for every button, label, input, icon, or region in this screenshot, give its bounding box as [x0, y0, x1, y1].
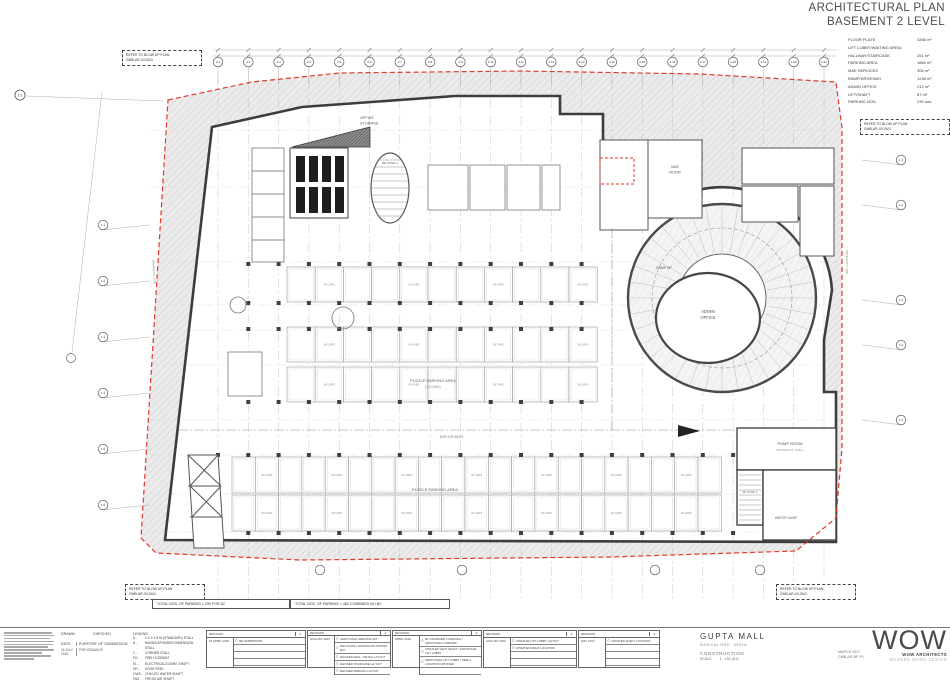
- parking-stall: [232, 495, 255, 531]
- grid-bubble-label: 2.7: [398, 60, 403, 64]
- parking-bay-label: 60 CARS: [408, 283, 419, 287]
- parking-stall: [698, 495, 721, 531]
- parking-stall: [513, 267, 541, 302]
- grid-bubble-label: 1.1: [899, 158, 904, 162]
- area-row: FLOOR PLATE4266 m²: [848, 36, 947, 44]
- column-symbol: [398, 453, 402, 457]
- grid-bubble-label: 1.3: [899, 298, 904, 302]
- area-row-label: PARKING AREA: [848, 59, 878, 67]
- parking-stall: [541, 367, 569, 402]
- grid-leader: [26, 96, 163, 101]
- parking-bay-label: 60 CARS: [681, 511, 692, 515]
- me-room-label: ROOM: [669, 171, 680, 175]
- area-row-value: 1248 m²: [917, 75, 947, 83]
- column-symbol: [519, 531, 523, 535]
- column-symbol: [549, 301, 553, 305]
- grid-bubble-label: 1.5: [899, 418, 904, 422]
- parking-stall: [513, 327, 541, 362]
- parking-stall: [442, 495, 465, 531]
- grid-bubble-label: 2.13: [579, 60, 585, 64]
- revision-item-text: ADDITIONAL LIFT LOBBY / FIRE-X LOCATION …: [425, 658, 480, 666]
- column-symbol: [337, 531, 341, 535]
- revision-item-text: B1 STANDARD 4 PARKING / ADDITIONAL CARPA…: [425, 637, 480, 645]
- grid-bubble-stem: [862, 420, 901, 425]
- parking-stall: [541, 267, 569, 302]
- revision-item-empty: [606, 659, 659, 666]
- revision-column: REVISION3APRIL 2016△B1 STANDARD 4 PARKIN…: [392, 630, 482, 668]
- parking-stall: [558, 457, 581, 493]
- grid-bubble-label: 2.15: [639, 60, 645, 64]
- column-symbol: [549, 262, 553, 266]
- column-symbol: [277, 262, 281, 266]
- area-row-value: 212 m²: [917, 83, 947, 91]
- parking-bay-label: 60 CARS: [324, 383, 335, 387]
- parking-stall: [488, 495, 511, 531]
- title-block: DRAWN CHECKED DATE PURPOSE OF SUBMISSION…: [0, 627, 950, 671]
- copyright-note: [4, 632, 54, 661]
- parking-stall: [628, 457, 651, 493]
- column-symbol: [701, 531, 705, 535]
- column-symbol: [246, 327, 250, 331]
- floor-plan-drawing: 2.12.22.32.42.52.62.72.82.92.102.112.122…: [0, 0, 950, 671]
- revision-triangle-icon: △: [336, 646, 339, 649]
- column-symbol: [307, 262, 311, 266]
- grid-bubble-stem: [103, 337, 150, 342]
- parking-total-notes: TOTAL NOS. OF PARKING = 239 FOR B2 TOTAL…: [152, 599, 450, 609]
- column-symbol: [489, 531, 493, 535]
- column-symbol: [307, 301, 311, 305]
- revision-triangle-icon: △: [421, 650, 424, 653]
- me-room-label: M&E: [671, 165, 679, 169]
- grid-bubble-stem: [103, 393, 150, 398]
- parking-stall: [698, 457, 721, 493]
- parking-stall: [558, 495, 581, 531]
- column-symbol: [398, 262, 402, 266]
- parking-stall: [541, 327, 569, 362]
- grid-bubble-label: 2.2: [246, 60, 251, 64]
- parking-stall: [372, 495, 395, 531]
- grid-bubble-label: 2.14: [609, 60, 615, 64]
- parking-bay-label: 60 CARS: [578, 383, 589, 387]
- refer-blowup-box: REFER TO BLOW UP PLAN GMB-AR-XX-BLD: [860, 119, 950, 135]
- area-row: LIFT LOBBY/WAITING AREA/: [848, 44, 947, 52]
- parking-stall: [456, 367, 484, 402]
- legend-desc: FRESH AIR SHAFT: [145, 677, 174, 682]
- parking-bay-label: 60 CARS: [408, 383, 419, 387]
- revision-item-text: UPDATED VENT SHAFT / ADDITIONAL LIFT LOB…: [425, 647, 480, 655]
- refer-blowup-line2: GMB-AR-XX-BLD: [126, 58, 198, 63]
- transformer-unit: [335, 156, 344, 182]
- column-symbol: [489, 327, 493, 331]
- refer-blowup-box: REFER TO BLOW UP PLAN GMB-AR-XX-BLD: [122, 50, 202, 66]
- grid-bubble-label: 1.3: [101, 335, 106, 339]
- column-symbol: [580, 327, 584, 331]
- parking-stall: [372, 457, 395, 493]
- column-symbol: [307, 453, 311, 457]
- column-symbol: [580, 262, 584, 266]
- column-symbol: [610, 531, 614, 535]
- revision-item-empty: [606, 645, 659, 652]
- grid-bubble-label: 2.1: [216, 60, 221, 64]
- re-stair-2-label: RE STAIR 2: [742, 490, 757, 494]
- legend-item: B -HANDICAP/WIDER DIMENSION STALL: [133, 641, 203, 651]
- office-storage-label: STORAGE: [360, 122, 379, 126]
- grid-bubble-label: 2.21: [821, 60, 827, 64]
- area-row-label: HALLWAY/STAIRCASE: [848, 52, 890, 60]
- revision-triangle-icon: △: [421, 660, 424, 663]
- admin-office-label: ADMIN: [701, 309, 715, 314]
- parking-total-combined: TOTAL NOS. OF PARKING = 482 COMBINED B1+…: [290, 599, 450, 609]
- drawing-title-line2: BASEMENT 2 LEVEL: [809, 16, 946, 30]
- driveway-label: DRIVEWAY: [440, 435, 465, 439]
- grid-bubble-label: 2.10: [488, 60, 494, 64]
- parking-bay-label: 60 CARS: [541, 473, 552, 477]
- legend-block: LEGEND A -2.4 X 4.8 M (STANDARD) STALLB …: [133, 632, 203, 682]
- revision-item-text: UPDATED DRAIN LOCATION: [516, 646, 555, 650]
- area-row: LIFT/SHAFT87 m²: [848, 91, 947, 99]
- area-statement-table: FLOOR PLATE4266 m²LIFT LOBBY/WAITING ARE…: [848, 36, 947, 106]
- revision-item-empty: [420, 668, 481, 675]
- revision-item-empty: [234, 645, 305, 652]
- refer-blowup-box: REFER TO BLOW UP PLAN GMB-AR-XX-BLD: [776, 584, 856, 600]
- pump-room-label: PUMP ROOM: [777, 441, 802, 446]
- parking-bay-label: 60 CARS: [471, 511, 482, 515]
- parking-stall: [488, 457, 511, 493]
- area-row-label: RAMP/DRIVEWAY: [848, 75, 882, 83]
- grid-bubble-label: 2.16: [670, 60, 676, 64]
- refer-blowup-box: REFER TO BLOW UP PLAN GMB-AR-XX-BLD: [125, 584, 205, 600]
- parking-bay-label: 60 CARS: [541, 511, 552, 515]
- transformer-unit: [335, 187, 344, 213]
- revision-item: △REVISED MALL / RETAIL LAYOUT: [335, 654, 390, 661]
- column-symbol: [428, 400, 432, 404]
- parking-stall: [279, 495, 302, 531]
- revision-item-empty: [511, 659, 576, 666]
- revision-item-text: RELOCATE LOADING/UNLOADING BAY: [340, 644, 389, 652]
- column-symbol: [246, 400, 250, 404]
- column-symbol: [458, 400, 462, 404]
- revision-item-text: REVISED MALL / RETAIL LAYOUT: [340, 655, 385, 659]
- revision-header-label: REVISION: [579, 632, 649, 636]
- ramp-up-label: RAMP UP: [656, 266, 672, 270]
- column-symbol: [458, 262, 462, 266]
- column-symbol: [519, 301, 523, 305]
- parking-bay-label: 60 CARS: [324, 283, 335, 287]
- parking-bay-label: 60 CARS: [408, 343, 419, 347]
- revision-item-empty: [511, 652, 576, 659]
- revision-header-label: REVISION: [393, 631, 471, 635]
- revision-item: △REVISED STAIRCASE LAYOUT: [335, 661, 390, 668]
- revision-item: △UPDATED VENT SHAFT / ADDITIONAL LIFT LO…: [420, 647, 481, 658]
- area-row-value: 306 m²: [917, 67, 947, 75]
- revision-column: REVISION116 APRIL 2015△RE-SUBMISSION: [206, 630, 306, 668]
- parking-stall: [651, 495, 674, 531]
- column-symbol: [428, 262, 432, 266]
- transformer-unit: [309, 156, 318, 182]
- parking-stall: [279, 457, 302, 493]
- refer-blowup-line2: GMB-AR-XX-BLD: [780, 592, 852, 597]
- parking-bay-label: 60 CARS: [681, 473, 692, 477]
- revision-item-text: ADDITIONAL SERVICE LIFT: [340, 637, 377, 641]
- area-row-label: LIFT/SHAFT: [848, 91, 870, 99]
- revision-header: REVISION1: [207, 631, 305, 638]
- area-row: ADMIN OFFICE212 m²: [848, 83, 947, 91]
- grid-bubble-label: 2.8: [428, 60, 433, 64]
- grid-bubble-label: 2.9: [458, 60, 463, 64]
- column-symbol: [246, 453, 250, 457]
- grid-bubble-label: 2.4: [307, 60, 312, 64]
- revision-item: △RELOCATE LOADING/UNLOADING BAY: [335, 643, 390, 654]
- parking-bay-label: 60 CARS: [262, 511, 273, 515]
- transformer-unit: [322, 187, 331, 213]
- column-symbol: [368, 262, 372, 266]
- puzzle-parking-label: PUZZLE PARKING AREA: [412, 487, 458, 492]
- area-row: PARKING AREA1860 m²: [848, 59, 947, 67]
- revision-number: 3: [471, 631, 481, 635]
- column-symbol: [428, 327, 432, 331]
- revision-column: REVISION5MAY 2017△UPDATED SHAFT LOCATION: [578, 630, 660, 668]
- column-symbol: [277, 453, 281, 457]
- column-symbol: [246, 531, 250, 535]
- grid-bubble-stem: [862, 205, 901, 210]
- column-symbol: [368, 453, 372, 457]
- parking-stall: [343, 327, 371, 362]
- revision-item: △UPDATED LIFT LOBBY LAYOUT: [511, 638, 576, 645]
- column-symbol: [246, 301, 250, 305]
- parking-stall: [428, 327, 456, 362]
- water-sump-label: WATER SUMP: [775, 516, 798, 520]
- parking-stall: [628, 495, 651, 531]
- revision-triangle-icon: △: [336, 637, 339, 640]
- grid-bubble-stem: [103, 281, 150, 286]
- column-symbol: [731, 453, 735, 457]
- parking-bay-label: 60 CARS: [578, 343, 589, 347]
- parking-bay-label: 60 CARS: [331, 511, 342, 515]
- area-row-label: LIFT LOBBY/WAITING AREA/: [848, 44, 902, 52]
- grid-bubble: [650, 565, 660, 575]
- grid-bubble-stem: [862, 345, 901, 350]
- grid-bubble-label: 2.19: [760, 60, 766, 64]
- parking-bay-label: 60 CARS: [578, 283, 589, 287]
- column-symbol: [398, 531, 402, 535]
- puzzle-parking-label: PUZZLE PARKING AREA: [410, 378, 456, 383]
- parking-stall: [372, 327, 400, 362]
- column-symbol: [489, 301, 493, 305]
- grid-bubble-label: 2.11: [518, 60, 524, 64]
- column-symbol: [368, 301, 372, 305]
- parking-stall: [349, 457, 372, 493]
- office-storage-label: OFFICE: [360, 116, 374, 120]
- parking-stall: [343, 367, 371, 402]
- drawing-title-line1: ARCHITECTURAL PLAN: [809, 2, 946, 16]
- area-row-value: 4266 m²: [917, 36, 947, 44]
- parking-bay-label: 60 CARS: [493, 383, 504, 387]
- revision-number: 2: [380, 631, 390, 635]
- area-row: M&E SERVICES306 m²: [848, 67, 947, 75]
- revision-item-text: UPDATED SHAFT LOCATION: [611, 639, 650, 643]
- revision-header-label: REVISION: [308, 631, 380, 635]
- parking-bay-label: 60 CARS: [401, 473, 412, 477]
- column-symbol: [458, 531, 462, 535]
- area-row-label: M&E SERVICES: [848, 67, 878, 75]
- date-label: DATE: [61, 642, 77, 646]
- column-symbol: [671, 531, 675, 535]
- column-symbol: [549, 531, 553, 535]
- wow-logo: WOW: [851, 629, 947, 652]
- drawn-checked-block: DRAWN CHECKED DATE PURPOSE OF SUBMISSION…: [61, 632, 129, 656]
- purpose-value: FOR ISSUANCE: [77, 648, 103, 656]
- grid-bubble-label: 2.12: [548, 60, 554, 64]
- drawing-title: ARCHITECTURAL PLAN BASEMENT 2 LEVEL: [809, 2, 946, 29]
- legend-key: B -: [133, 641, 145, 651]
- parking-stall: [512, 495, 535, 531]
- revision-date: AUGUST 2016: [484, 638, 511, 667]
- area-row: RAMP/DRIVEWAY1248 m²: [848, 75, 947, 83]
- revision-number: 4: [566, 632, 576, 636]
- column-symbol: [489, 262, 493, 266]
- revision-item: △UPDATED SHAFT LOCATION: [606, 638, 659, 645]
- parking-stall: [302, 457, 325, 493]
- scale-value: 1 : 150 (A1): [720, 657, 739, 661]
- re-stair-1-label: RE STAIR 1: [382, 161, 398, 165]
- legend-item: FAS -FRESH AIR SHAFT: [133, 677, 203, 682]
- parking-stall: [343, 267, 371, 302]
- parking-bay-label: 60 CARS: [401, 511, 412, 515]
- purpose-label: PURPOSE OF SUBMISSION: [77, 642, 128, 646]
- column-symbol: [428, 453, 432, 457]
- column-symbol: [337, 453, 341, 457]
- dimension-line: [72, 92, 102, 352]
- column-symbol: [368, 327, 372, 331]
- grid-bubble-stem: [862, 160, 901, 165]
- column-symbol: [277, 327, 281, 331]
- project-status: CONSTRUCTION: [700, 651, 810, 656]
- parking-bay-label: 60 CARS: [471, 473, 482, 477]
- column-symbol: [731, 531, 735, 535]
- checked-label: CHECKED: [93, 632, 111, 636]
- parking-bay-label: 60 CARS: [331, 473, 342, 477]
- grid-bubble-label: 1.5: [101, 447, 106, 451]
- oval-stair: RE STAIR 1: [371, 153, 409, 223]
- grid-bubble-label: 1.2: [101, 279, 106, 283]
- parking-bay-label: 60 CARS: [262, 473, 273, 477]
- parking-stall: [287, 327, 315, 362]
- legend-desc: HANDICAP/WIDER DIMENSION STALL: [145, 641, 203, 651]
- revision-column: REVISION4AUGUST 2016△UPDATED LIFT LOBBY …: [483, 630, 577, 668]
- column-symbol: [549, 327, 553, 331]
- drawing-sheet: { "title": {"line1": "ARCHITECTURAL PLAN…: [0, 0, 950, 671]
- revision-item-empty: [234, 659, 305, 666]
- project-block: GUPTA MALL BANGALORE, INDIA CONSTRUCTION…: [700, 632, 810, 661]
- revision-triangle-icon: △: [235, 639, 238, 642]
- column-symbol: [277, 301, 281, 305]
- grid-bubble: [457, 565, 467, 575]
- column-symbol: [701, 453, 705, 457]
- revision-number: 1: [295, 632, 305, 636]
- revision-item-text: UPDATED LIFT LOBBY LAYOUT: [516, 639, 559, 643]
- column-symbol: [671, 453, 675, 457]
- revision-item: △UPDATED DRAIN LOCATION: [511, 645, 576, 652]
- column-symbol: [337, 262, 341, 266]
- revision-triangle-icon: △: [336, 655, 339, 658]
- parking-stall: [582, 457, 605, 493]
- parking-stall: [456, 267, 484, 302]
- grid-bubble-label: 2.5: [337, 60, 342, 64]
- column-symbol: [277, 400, 281, 404]
- column-symbol: [519, 400, 523, 404]
- grid-bubble-label: 2.18: [730, 60, 736, 64]
- revision-header: REVISION4: [484, 631, 576, 638]
- column-symbol: [640, 453, 644, 457]
- column-symbol: [307, 531, 311, 535]
- revision-item: △B1 STANDARD 4 PARKING / ADDITIONAL CARP…: [420, 636, 481, 647]
- grid-bubble-stem: [103, 225, 150, 230]
- admin-office-label: OFFICE: [700, 315, 716, 320]
- grid-bubble-label: 1.4: [101, 391, 106, 395]
- grid-bubble-stem: [103, 449, 150, 454]
- drawn-label: DRAWN: [61, 632, 93, 636]
- column-symbol: [580, 400, 584, 404]
- legend-key: FAS -: [133, 677, 145, 682]
- grid-bubble-label: 1.6: [101, 503, 106, 507]
- column-symbol: [458, 327, 462, 331]
- pump-room-level: BOTTOM LVL -9.80m: [777, 448, 805, 452]
- grid-bubble-label: 1.0: [18, 93, 23, 97]
- revision-item-empty: [606, 652, 659, 659]
- column-symbol: [549, 400, 553, 404]
- transformer-unit: [296, 156, 305, 182]
- column-symbol: [337, 301, 341, 305]
- column-symbol: [337, 400, 341, 404]
- grid-bubble-label: 2.3: [277, 60, 282, 64]
- parking-stall: [651, 457, 674, 493]
- firm-subname: WARNER WONG DESIGN: [851, 657, 947, 662]
- revision-item-empty: [234, 652, 305, 659]
- parking-stall: [513, 367, 541, 402]
- parking-stall: [287, 367, 315, 402]
- revision-date: APRIL 2016: [393, 636, 420, 675]
- revision-date: 16 APRIL 2015: [207, 638, 234, 667]
- area-row-value: 261 m²: [917, 52, 947, 60]
- column-symbol: [489, 453, 493, 457]
- grid-bubble-label: 2.6: [367, 60, 372, 64]
- revision-item: △RE-SUBMISSION: [234, 638, 305, 645]
- grid-bubble-label: 2.17: [700, 60, 706, 64]
- parking-stall: [372, 267, 400, 302]
- revision-item-text: RE-SUBMISSION: [239, 639, 262, 643]
- parking-bay-label: 60 CARS: [493, 343, 504, 347]
- parking-bay-label: 60 CARS: [493, 283, 504, 287]
- area-row: HALLWAY/STAIRCASE261 m²: [848, 52, 947, 60]
- date-value: 16 JULY 2016: [61, 648, 77, 656]
- transformer-unit: [309, 187, 318, 213]
- project-name: GUPTA MALL: [700, 632, 810, 641]
- column-symbol: [580, 531, 584, 535]
- column-symbol: [580, 453, 584, 457]
- loading-dock: [188, 455, 224, 548]
- column-symbol: [519, 262, 523, 266]
- column-symbol: [549, 453, 553, 457]
- refer-blowup-line2: GMB-AR-XX-BLD: [864, 127, 946, 132]
- area-row-label: FLOOR PLATE: [848, 36, 875, 44]
- transformer-unit: [296, 187, 305, 213]
- parking-stall: [302, 495, 325, 531]
- column-symbol: [519, 453, 523, 457]
- grid-bubble: [67, 354, 76, 363]
- area-row-value: [917, 44, 947, 52]
- area-row: PARKING NOS.239 nos.: [848, 98, 947, 106]
- grid-bubble: [315, 565, 325, 575]
